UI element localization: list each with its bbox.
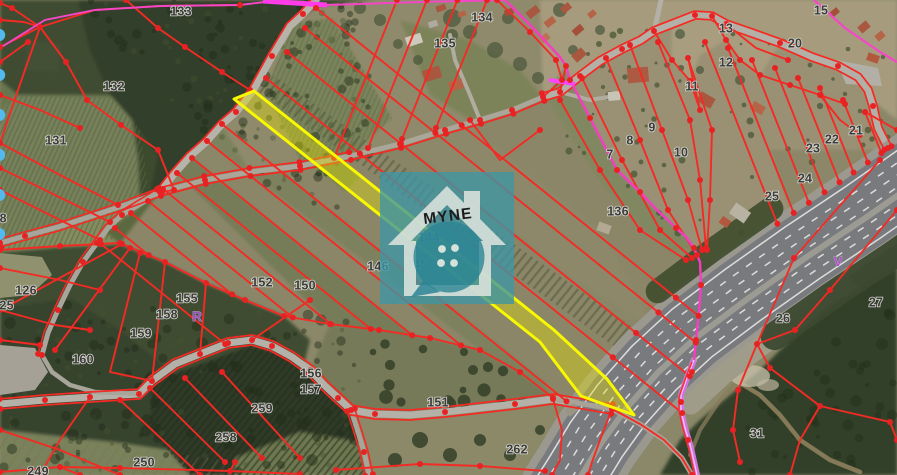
svg-text:262: 262 [506, 443, 527, 457]
svg-text:158: 158 [156, 308, 177, 322]
svg-text:159: 159 [130, 327, 151, 341]
svg-text:160: 160 [72, 353, 93, 367]
svg-text:15: 15 [814, 4, 828, 18]
svg-text:26: 26 [776, 312, 790, 326]
svg-text:R: R [192, 309, 202, 324]
svg-text:131: 131 [45, 134, 66, 148]
svg-text:21: 21 [849, 124, 863, 138]
svg-text:128: 128 [0, 212, 7, 226]
svg-text:249: 249 [27, 465, 48, 475]
svg-text:V: V [834, 254, 843, 269]
svg-text:258: 258 [215, 431, 236, 445]
svg-text:10: 10 [674, 146, 688, 160]
svg-text:250: 250 [133, 456, 154, 470]
svg-text:12: 12 [719, 56, 733, 70]
svg-text:8: 8 [626, 134, 633, 148]
svg-text:25: 25 [765, 190, 779, 204]
svg-text:7: 7 [606, 148, 613, 162]
svg-text:136: 136 [607, 205, 628, 219]
svg-text:23: 23 [806, 142, 820, 156]
svg-text:27: 27 [869, 296, 883, 310]
svg-text:132: 132 [103, 80, 124, 94]
svg-text:125: 125 [0, 299, 14, 313]
svg-text:20: 20 [788, 37, 802, 51]
svg-text:155: 155 [176, 292, 197, 306]
svg-text:259: 259 [251, 402, 272, 416]
svg-text:24: 24 [798, 172, 812, 186]
svg-text:134: 134 [471, 11, 492, 25]
svg-text:135: 135 [434, 37, 455, 51]
svg-text:22: 22 [825, 133, 839, 147]
svg-text:150: 150 [294, 279, 315, 293]
svg-text:126: 126 [15, 284, 36, 298]
svg-text:31: 31 [750, 427, 764, 441]
svg-text:11: 11 [685, 80, 699, 94]
svg-text:156: 156 [300, 367, 321, 381]
svg-text:13: 13 [719, 22, 733, 36]
svg-text:157: 157 [300, 383, 321, 397]
svg-text:151: 151 [427, 396, 448, 410]
svg-text:133: 133 [170, 5, 191, 19]
svg-text:9: 9 [648, 121, 655, 135]
svg-text:152: 152 [251, 276, 272, 290]
